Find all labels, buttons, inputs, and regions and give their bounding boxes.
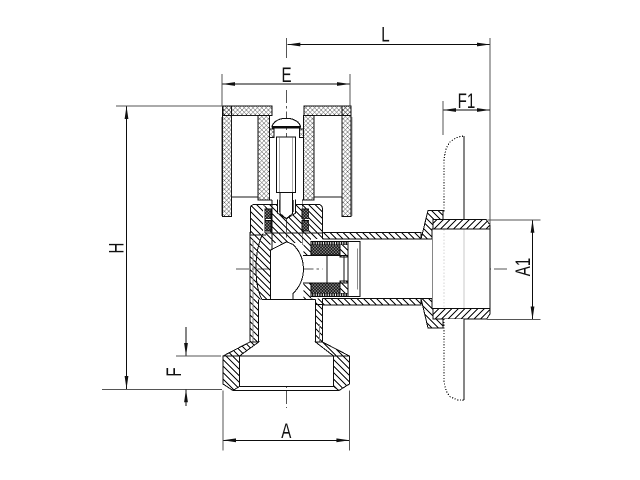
svg-text:L: L (381, 22, 389, 46)
svg-text:H: H (104, 243, 128, 254)
svg-text:A: A (281, 418, 292, 442)
svg-text:E: E (281, 62, 291, 86)
svg-text:F1: F1 (458, 88, 476, 112)
svg-text:A1: A1 (510, 258, 534, 276)
svg-text:F: F (161, 367, 185, 376)
